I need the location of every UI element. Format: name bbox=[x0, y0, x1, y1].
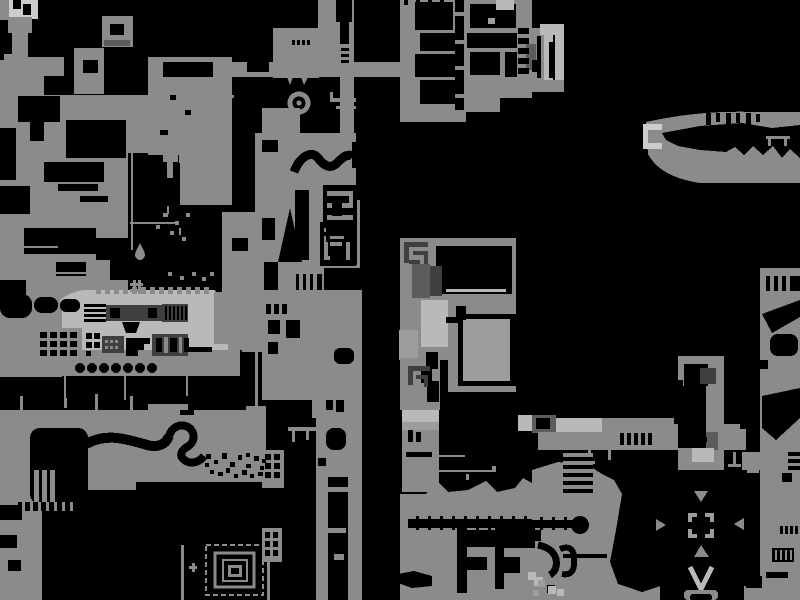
map-shape bbox=[156, 338, 162, 352]
map-shape bbox=[287, 77, 293, 85]
map-shape bbox=[0, 400, 36, 410]
map-shape bbox=[518, 28, 529, 34]
map-shape bbox=[420, 33, 457, 51]
map-shape bbox=[602, 418, 674, 432]
map-shape bbox=[130, 222, 176, 224]
map-shape bbox=[177, 287, 182, 294]
map-shape bbox=[84, 319, 106, 322]
map-shape bbox=[265, 463, 271, 469]
map-shape bbox=[341, 54, 349, 57]
map-shape bbox=[740, 424, 746, 429]
map-shape bbox=[330, 98, 356, 102]
map-shape bbox=[412, 264, 430, 298]
map-shape bbox=[180, 410, 194, 415]
map-shape bbox=[467, 33, 517, 48]
map-shape bbox=[110, 250, 136, 280]
map-shape bbox=[70, 350, 77, 356]
map-shape bbox=[165, 306, 167, 320]
map-shape bbox=[23, 4, 31, 15]
map-shape bbox=[75, 363, 85, 373]
map-shape bbox=[115, 340, 118, 343]
map-shape bbox=[86, 333, 92, 339]
map-shape bbox=[788, 452, 800, 456]
map-shape bbox=[34, 470, 39, 502]
map-shape bbox=[173, 306, 175, 320]
map-shape bbox=[86, 342, 92, 348]
map-shape bbox=[790, 550, 792, 560]
map-shape bbox=[0, 246, 58, 248]
map-shape bbox=[571, 516, 589, 534]
map-shape bbox=[301, 77, 308, 85]
map-shape bbox=[326, 226, 352, 242]
map-shape bbox=[416, 0, 420, 5]
map-shape bbox=[94, 333, 100, 339]
map-shape bbox=[64, 376, 66, 400]
map-shape bbox=[408, 430, 413, 442]
map-shape bbox=[775, 550, 777, 560]
map-shape bbox=[341, 102, 344, 110]
map-shape bbox=[728, 464, 741, 467]
map-shape bbox=[548, 586, 556, 594]
map-shape bbox=[130, 396, 133, 416]
map-shape bbox=[549, 42, 553, 78]
map-shape bbox=[467, 530, 495, 547]
map-shape bbox=[230, 462, 235, 467]
map-shape bbox=[518, 38, 529, 44]
map-shape bbox=[62, 502, 65, 511]
map-shape bbox=[183, 163, 189, 178]
map-shape bbox=[795, 526, 798, 534]
map-shape bbox=[495, 527, 504, 589]
map-shape bbox=[104, 40, 130, 46]
map-shape bbox=[44, 162, 104, 182]
map-shape bbox=[267, 556, 270, 600]
map-shape bbox=[210, 272, 214, 276]
map-shape bbox=[416, 375, 428, 379]
map-shape bbox=[726, 113, 731, 126]
bud-cap bbox=[179, 150, 194, 163]
map-shape bbox=[156, 225, 160, 229]
map-shape bbox=[164, 337, 168, 353]
map-shape bbox=[234, 474, 238, 478]
map-shape bbox=[130, 283, 143, 286]
map-shape bbox=[788, 459, 800, 463]
map-shape bbox=[222, 95, 234, 98]
map-shape bbox=[202, 277, 206, 281]
map-shape bbox=[254, 456, 259, 461]
map-shape bbox=[265, 122, 276, 125]
droplet bbox=[135, 243, 145, 260]
map-shape bbox=[512, 516, 515, 530]
map-shape bbox=[246, 453, 250, 457]
map-shape bbox=[500, 98, 532, 122]
map-shape bbox=[455, 66, 464, 70]
map-shape bbox=[268, 320, 280, 334]
map-shape bbox=[168, 272, 172, 276]
map-shape bbox=[274, 454, 280, 460]
map-shape bbox=[179, 337, 182, 353]
map-shape bbox=[111, 363, 121, 373]
map-shape bbox=[785, 550, 787, 560]
map-shape bbox=[692, 448, 714, 462]
gate-chevron bbox=[690, 567, 712, 589]
map-shape bbox=[50, 350, 57, 356]
map-shape bbox=[192, 272, 196, 276]
map-shape bbox=[159, 287, 164, 294]
map-shape bbox=[186, 287, 191, 294]
map-shape bbox=[555, 32, 564, 86]
bud-cap bbox=[163, 150, 178, 162]
map-shape bbox=[148, 308, 157, 318]
map-shape bbox=[688, 437, 691, 442]
map-shape bbox=[399, 330, 418, 360]
map-shape bbox=[744, 586, 764, 600]
map-shape bbox=[476, 516, 479, 530]
map-shape bbox=[273, 28, 319, 78]
gate-arrow-up bbox=[694, 545, 709, 557]
map-shape bbox=[557, 589, 564, 596]
map-shape bbox=[40, 341, 47, 347]
map-shape bbox=[141, 287, 146, 294]
map-shape bbox=[340, 22, 349, 44]
map-shape bbox=[262, 459, 266, 463]
map-shape bbox=[50, 341, 57, 347]
map-shape bbox=[746, 113, 751, 125]
map-shape bbox=[177, 306, 179, 320]
map-shape bbox=[273, 532, 278, 538]
map-shape bbox=[563, 481, 593, 485]
map-shape bbox=[269, 125, 272, 135]
map-shape bbox=[123, 363, 133, 373]
map-shape bbox=[307, 40, 310, 45]
map-shape bbox=[402, 422, 439, 430]
map-shape bbox=[528, 572, 536, 580]
map-shape bbox=[186, 374, 188, 396]
map-shape bbox=[688, 529, 692, 538]
map-shape bbox=[528, 80, 564, 92]
map-shape bbox=[274, 304, 279, 314]
map-shape bbox=[246, 464, 251, 468]
map-shape bbox=[40, 350, 47, 356]
map-shape bbox=[188, 347, 212, 352]
map-shape bbox=[0, 186, 30, 214]
map-shape bbox=[302, 40, 305, 45]
map-shape bbox=[620, 433, 624, 445]
map-shape bbox=[70, 502, 73, 511]
map-shape bbox=[86, 351, 91, 356]
map-shape bbox=[710, 513, 714, 522]
map-shape bbox=[533, 590, 539, 596]
map-shape bbox=[84, 304, 106, 307]
map-shape bbox=[766, 572, 788, 578]
map-shape bbox=[222, 108, 232, 111]
map-shape bbox=[505, 52, 517, 77]
map-shape bbox=[274, 472, 280, 478]
map-shape bbox=[467, 557, 487, 570]
map-shape bbox=[563, 465, 593, 469]
map-shape bbox=[318, 458, 326, 466]
map-shape bbox=[83, 60, 98, 73]
map-shape bbox=[226, 468, 230, 473]
map-shape bbox=[192, 563, 195, 572]
map-shape bbox=[50, 332, 57, 338]
map-shape bbox=[770, 334, 798, 356]
map-shape bbox=[268, 342, 278, 354]
map-shape bbox=[532, 462, 660, 600]
map-shape bbox=[167, 162, 173, 178]
map-shape bbox=[439, 470, 495, 472]
map-shape bbox=[328, 487, 348, 492]
map-shape bbox=[336, 0, 352, 22]
map-shape bbox=[552, 517, 555, 530]
map-shape bbox=[87, 363, 97, 373]
map-shape bbox=[648, 124, 662, 130]
map-shape bbox=[330, 92, 333, 100]
map-shape bbox=[706, 113, 711, 125]
map-shape bbox=[641, 433, 645, 445]
map-shape bbox=[186, 213, 190, 217]
map-shape bbox=[458, 314, 516, 319]
map-shape bbox=[457, 527, 467, 593]
map-shape bbox=[297, 40, 300, 45]
map-shape bbox=[421, 300, 448, 347]
map-shape bbox=[678, 380, 683, 388]
map-shape bbox=[185, 110, 191, 115]
map-shape bbox=[105, 340, 108, 343]
map-shape bbox=[678, 386, 706, 448]
map-shape bbox=[110, 308, 120, 318]
map-shape bbox=[716, 113, 720, 122]
map-shape bbox=[404, 0, 408, 5]
map-shape bbox=[540, 517, 543, 530]
map-shape bbox=[608, 450, 611, 460]
map-shape bbox=[242, 320, 266, 352]
map-shape bbox=[524, 516, 527, 530]
map-shape bbox=[416, 432, 421, 442]
map-shape bbox=[30, 107, 44, 141]
map-shape bbox=[563, 554, 607, 558]
map-shape bbox=[334, 554, 344, 560]
map-shape bbox=[266, 304, 271, 314]
map-shape bbox=[168, 287, 173, 294]
map-shape bbox=[466, 474, 469, 480]
map-shape bbox=[105, 287, 110, 294]
map-shape bbox=[50, 470, 55, 502]
map-shape bbox=[265, 472, 271, 478]
map-shape bbox=[30, 502, 33, 511]
map-shape bbox=[439, 455, 465, 457]
map-shape bbox=[330, 242, 342, 246]
map-shape bbox=[204, 287, 209, 294]
map-shape bbox=[286, 320, 300, 338]
map-shape bbox=[175, 221, 179, 225]
gate-arrow-right bbox=[656, 519, 666, 531]
map-shape bbox=[704, 437, 707, 442]
map-shape bbox=[306, 274, 310, 290]
map-viewport bbox=[0, 0, 800, 600]
map-shape bbox=[231, 568, 239, 574]
map-shape bbox=[455, 40, 464, 44]
map-shape bbox=[179, 228, 181, 235]
map-shape bbox=[22, 502, 25, 511]
map-shape bbox=[790, 526, 793, 534]
map-shape bbox=[518, 58, 529, 64]
map-shape bbox=[538, 580, 545, 587]
trunk-window-bar bbox=[163, 62, 213, 77]
map-shape bbox=[780, 550, 782, 560]
map-shape bbox=[0, 535, 17, 548]
map-shape bbox=[170, 231, 174, 235]
map-shape bbox=[206, 454, 211, 459]
map-shape bbox=[768, 139, 771, 146]
map-shape bbox=[492, 466, 496, 472]
map-shape bbox=[250, 474, 254, 478]
map-shape bbox=[316, 477, 328, 600]
map-shape bbox=[328, 528, 346, 533]
map-shape bbox=[784, 139, 787, 146]
map-shape bbox=[260, 466, 264, 470]
gate-arrow-down bbox=[694, 491, 708, 502]
map-shape bbox=[135, 363, 145, 373]
map-shape bbox=[352, 142, 360, 168]
map-shape bbox=[488, 18, 495, 24]
map-shape bbox=[409, 260, 420, 264]
map-shape bbox=[180, 276, 184, 280]
corridor-entrance-bracket bbox=[648, 143, 662, 149]
map-shape bbox=[404, 247, 409, 263]
map-shape bbox=[700, 368, 716, 384]
map-shape bbox=[124, 376, 126, 400]
map-shape bbox=[780, 526, 783, 534]
map-shape bbox=[58, 184, 98, 191]
map-shape bbox=[336, 106, 356, 109]
map-shape bbox=[336, 400, 344, 412]
map-shape bbox=[766, 136, 790, 139]
map-shape bbox=[170, 95, 176, 100]
map-shape bbox=[326, 400, 333, 410]
map-shape bbox=[99, 363, 109, 373]
map-shape bbox=[13, 0, 21, 9]
map-shape bbox=[114, 287, 119, 294]
map-shape bbox=[210, 470, 214, 474]
map-shape bbox=[60, 341, 67, 347]
map-shape bbox=[510, 314, 516, 386]
map-shape bbox=[20, 396, 23, 410]
map-shape bbox=[785, 526, 788, 534]
map-shape bbox=[420, 80, 458, 104]
map-shape bbox=[428, 516, 431, 530]
region-map-canvas[interactable] bbox=[0, 0, 800, 600]
map-shape bbox=[264, 262, 278, 290]
map-shape bbox=[46, 502, 49, 511]
map-shape bbox=[181, 545, 184, 600]
map-shape bbox=[232, 238, 248, 251]
map-shape bbox=[326, 428, 346, 450]
map-shape bbox=[348, 415, 362, 600]
map-shape bbox=[282, 304, 287, 314]
map-shape bbox=[96, 287, 101, 294]
map-shape bbox=[0, 340, 26, 342]
map-shape bbox=[110, 340, 113, 343]
map-shape bbox=[0, 505, 22, 520]
gate-arrow-left bbox=[734, 518, 744, 530]
large-chamber bbox=[436, 246, 512, 294]
map-shape bbox=[349, 191, 353, 208]
map-shape bbox=[299, 274, 303, 290]
map-shape bbox=[180, 57, 232, 205]
map-shape bbox=[752, 452, 755, 472]
map-shape bbox=[80, 196, 108, 202]
map-shape bbox=[518, 68, 529, 74]
map-shape bbox=[643, 124, 648, 149]
map-shape bbox=[238, 455, 242, 460]
map-shape bbox=[424, 379, 428, 387]
map-shape bbox=[786, 276, 790, 291]
map-shape bbox=[288, 427, 316, 431]
map-shape bbox=[634, 433, 638, 445]
map-shape bbox=[292, 40, 295, 45]
map-shape bbox=[60, 332, 67, 338]
map-shape bbox=[466, 112, 500, 122]
map-shape bbox=[205, 463, 209, 467]
map-shape bbox=[413, 251, 428, 255]
map-shape bbox=[455, 94, 464, 98]
map-shape bbox=[185, 306, 187, 320]
map-shape bbox=[627, 433, 631, 445]
map-shape bbox=[8, 560, 21, 571]
map-shape bbox=[440, 516, 443, 530]
map-shape bbox=[455, 12, 464, 16]
map-shape bbox=[563, 489, 593, 493]
map-shape bbox=[463, 319, 510, 381]
map-shape bbox=[648, 433, 652, 445]
map-shape bbox=[518, 415, 534, 431]
map-shape bbox=[564, 517, 567, 530]
map-shape bbox=[456, 306, 466, 320]
map-shape bbox=[255, 338, 258, 432]
map-shape bbox=[167, 206, 169, 214]
map-shape bbox=[131, 150, 133, 250]
map-shape bbox=[440, 0, 444, 5]
map-shape bbox=[503, 528, 535, 548]
map-shape bbox=[265, 550, 270, 556]
map-shape bbox=[38, 502, 41, 511]
map-shape bbox=[40, 332, 47, 338]
map-shape bbox=[488, 516, 491, 530]
map-shape bbox=[170, 338, 177, 352]
map-shape bbox=[24, 228, 96, 254]
map-shape bbox=[60, 299, 80, 312]
map-shape bbox=[218, 472, 223, 476]
map-shape bbox=[770, 276, 774, 291]
map-shape bbox=[746, 576, 762, 588]
map-shape bbox=[747, 470, 759, 473]
map-shape bbox=[332, 200, 342, 216]
map-shape bbox=[102, 336, 124, 353]
map-shape bbox=[733, 452, 736, 466]
map-shape bbox=[274, 463, 280, 469]
map-shape bbox=[66, 120, 126, 158]
map-shape bbox=[788, 466, 800, 470]
map-shape bbox=[408, 371, 413, 385]
map-shape bbox=[242, 470, 247, 475]
map-shape bbox=[556, 418, 602, 432]
map-shape bbox=[696, 437, 699, 442]
map-shape bbox=[123, 287, 128, 294]
map-shape bbox=[273, 550, 278, 556]
map-shape bbox=[55, 272, 109, 274]
bullseye-core bbox=[297, 101, 302, 106]
